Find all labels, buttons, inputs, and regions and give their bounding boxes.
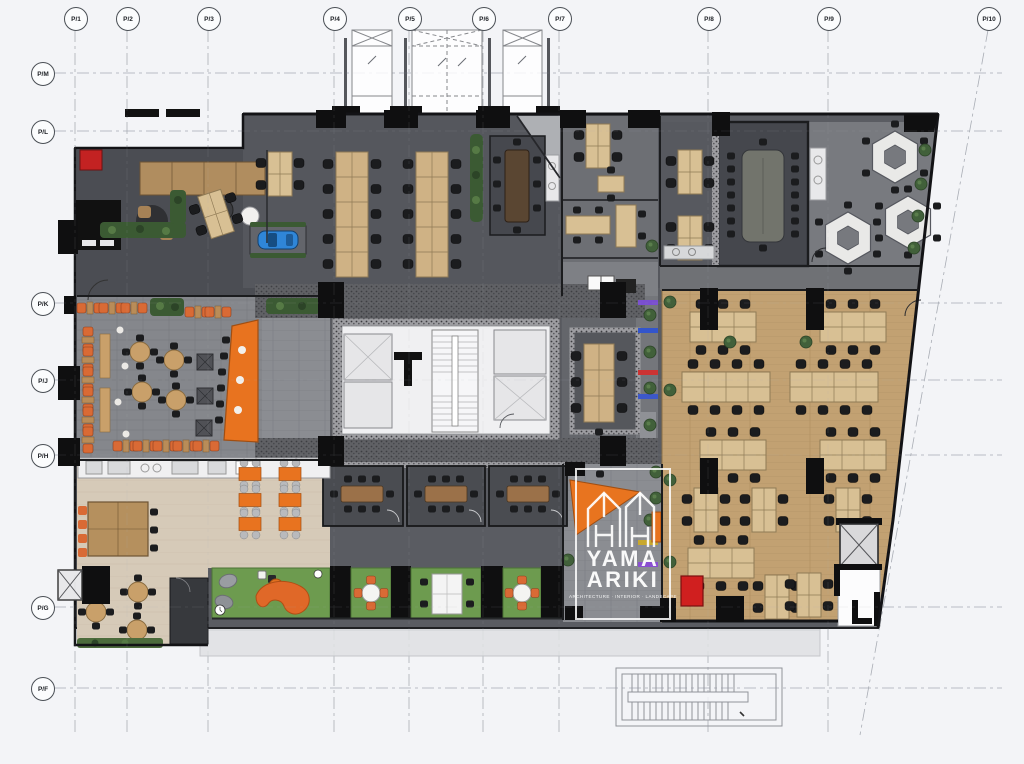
building-core <box>332 318 560 440</box>
grid-bubble-P/2: P/2 <box>116 7 140 31</box>
store-room <box>170 578 208 644</box>
floor-plan: P/1P/2P/3P/4P/5P/6P/7P/8P/9P/10P/MP/LP/K… <box>0 0 1024 764</box>
grid-bubble-P/8: P/8 <box>697 7 721 31</box>
grid-bubble-P/L: P/L <box>31 120 55 144</box>
car-display <box>250 222 306 258</box>
grid-bubble-P/F: P/F <box>31 677 55 701</box>
grid-bubble-P/10: P/10 <box>977 7 1001 31</box>
grid-bubble-P/H: P/H <box>31 444 55 468</box>
grid-bubble-P/1: P/1 <box>64 7 88 31</box>
meeting-rooms <box>323 462 569 526</box>
grid-bubble-P/7: P/7 <box>548 7 572 31</box>
service-shaft <box>834 518 882 626</box>
grid-bubble-P/M: P/M <box>31 62 55 86</box>
grid-bubble-P/6: P/6 <box>472 7 496 31</box>
floor-plan-drawing <box>0 0 1024 764</box>
entrance-canopies <box>332 30 560 118</box>
red-kiosk <box>681 576 703 606</box>
grid-bubble-P/3: P/3 <box>197 7 221 31</box>
grid-bubble-P/J: P/J <box>31 369 55 393</box>
grid-bubble-P/K: P/K <box>31 292 55 316</box>
grid-bubble-P/4: P/4 <box>323 7 347 31</box>
grid-bubble-P/G: P/G <box>31 596 55 620</box>
grid-bubble-P/5: P/5 <box>398 7 422 31</box>
soccer-ball <box>314 570 322 578</box>
grid-bubble-P/9: P/9 <box>817 7 841 31</box>
